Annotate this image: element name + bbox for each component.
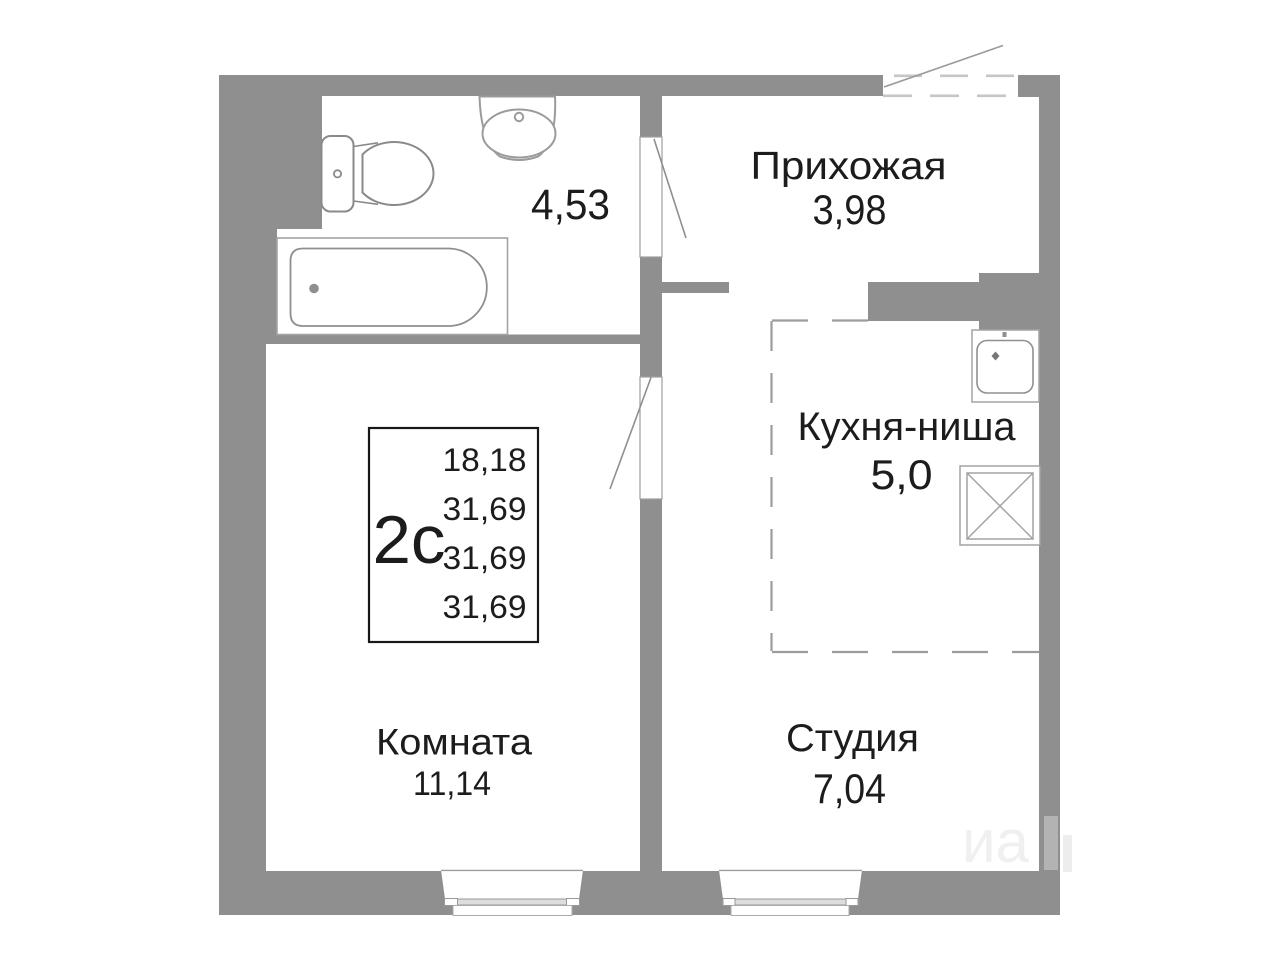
svg-text:4,53: 4,53	[531, 181, 610, 229]
svg-text:3,98: 3,98	[813, 186, 887, 233]
svg-text:Кухня-ниша: Кухня-ниша	[798, 405, 1017, 449]
svg-text:5,0: 5,0	[871, 451, 933, 498]
svg-text:Прихожая: Прихожая	[751, 145, 947, 188]
svg-text:Студия: Студия	[786, 717, 919, 760]
svg-text:11,14: 11,14	[413, 765, 491, 803]
svg-text:7,04: 7,04	[813, 765, 886, 812]
svg-text:18,18: 18,18	[443, 442, 527, 478]
svg-text:2с: 2с	[373, 502, 446, 578]
svg-text:31,69: 31,69	[443, 589, 527, 625]
svg-text:Комната: Комната	[376, 722, 532, 763]
svg-text:31,69: 31,69	[443, 491, 527, 527]
svg-text:иа: иа	[962, 808, 1030, 875]
svg-text:31,69: 31,69	[443, 540, 527, 576]
